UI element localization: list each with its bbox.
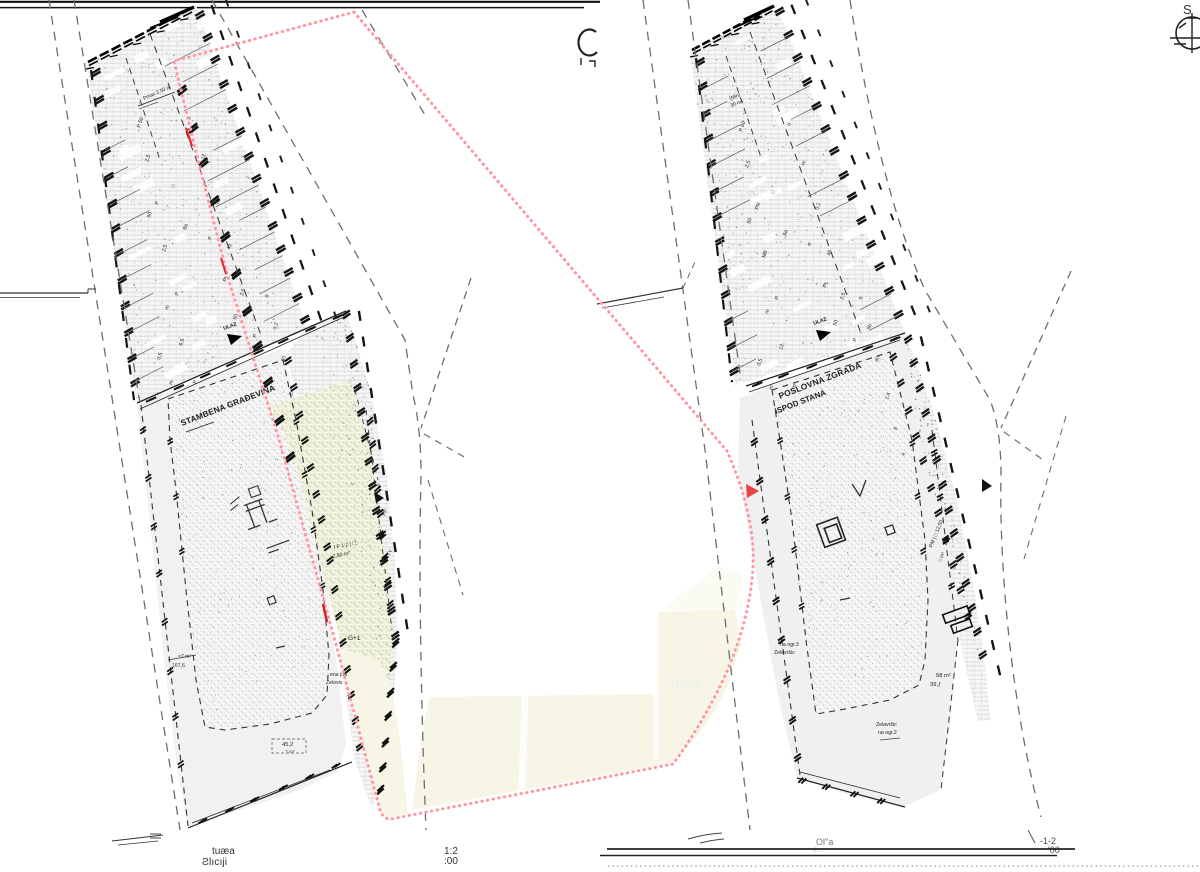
svg-text:Zelavršic: Zelavršic <box>876 722 897 728</box>
svg-text:ena jna ˈ: ena jna ˈ <box>330 672 350 678</box>
svg-text:Olʹʹa: Olʹʹa <box>816 837 833 847</box>
svg-text:45,2: 45,2 <box>282 742 293 748</box>
svg-text:na ogr.2: na ogr.2 <box>878 730 897 736</box>
svg-text:ʹ00: ʹ00 <box>1048 845 1060 855</box>
svg-text:TIRM: TIRM <box>668 676 700 691</box>
svg-text:na ogr.3: na ogr.3 <box>780 642 799 648</box>
svg-text:58 m²: 58 m² <box>936 673 951 679</box>
svg-text:39,ƒ: 39,ƒ <box>930 682 941 688</box>
svg-text:Zelevršic: Zelevršic <box>774 650 795 656</box>
svg-text:Zelovis: Zelovis <box>326 680 343 686</box>
svg-text:S: S <box>1183 2 1192 17</box>
svg-text:167,6: 167,6 <box>172 663 185 669</box>
svg-text:Ƨlıcıji: Ƨlıcıji <box>202 856 227 868</box>
svg-text:? m²: ? m² <box>285 749 295 755</box>
svg-text::00: :00 <box>444 856 458 867</box>
svg-text:lːːː.: lːːː. <box>814 847 823 854</box>
svg-text:G+1: G+1 <box>348 635 361 642</box>
